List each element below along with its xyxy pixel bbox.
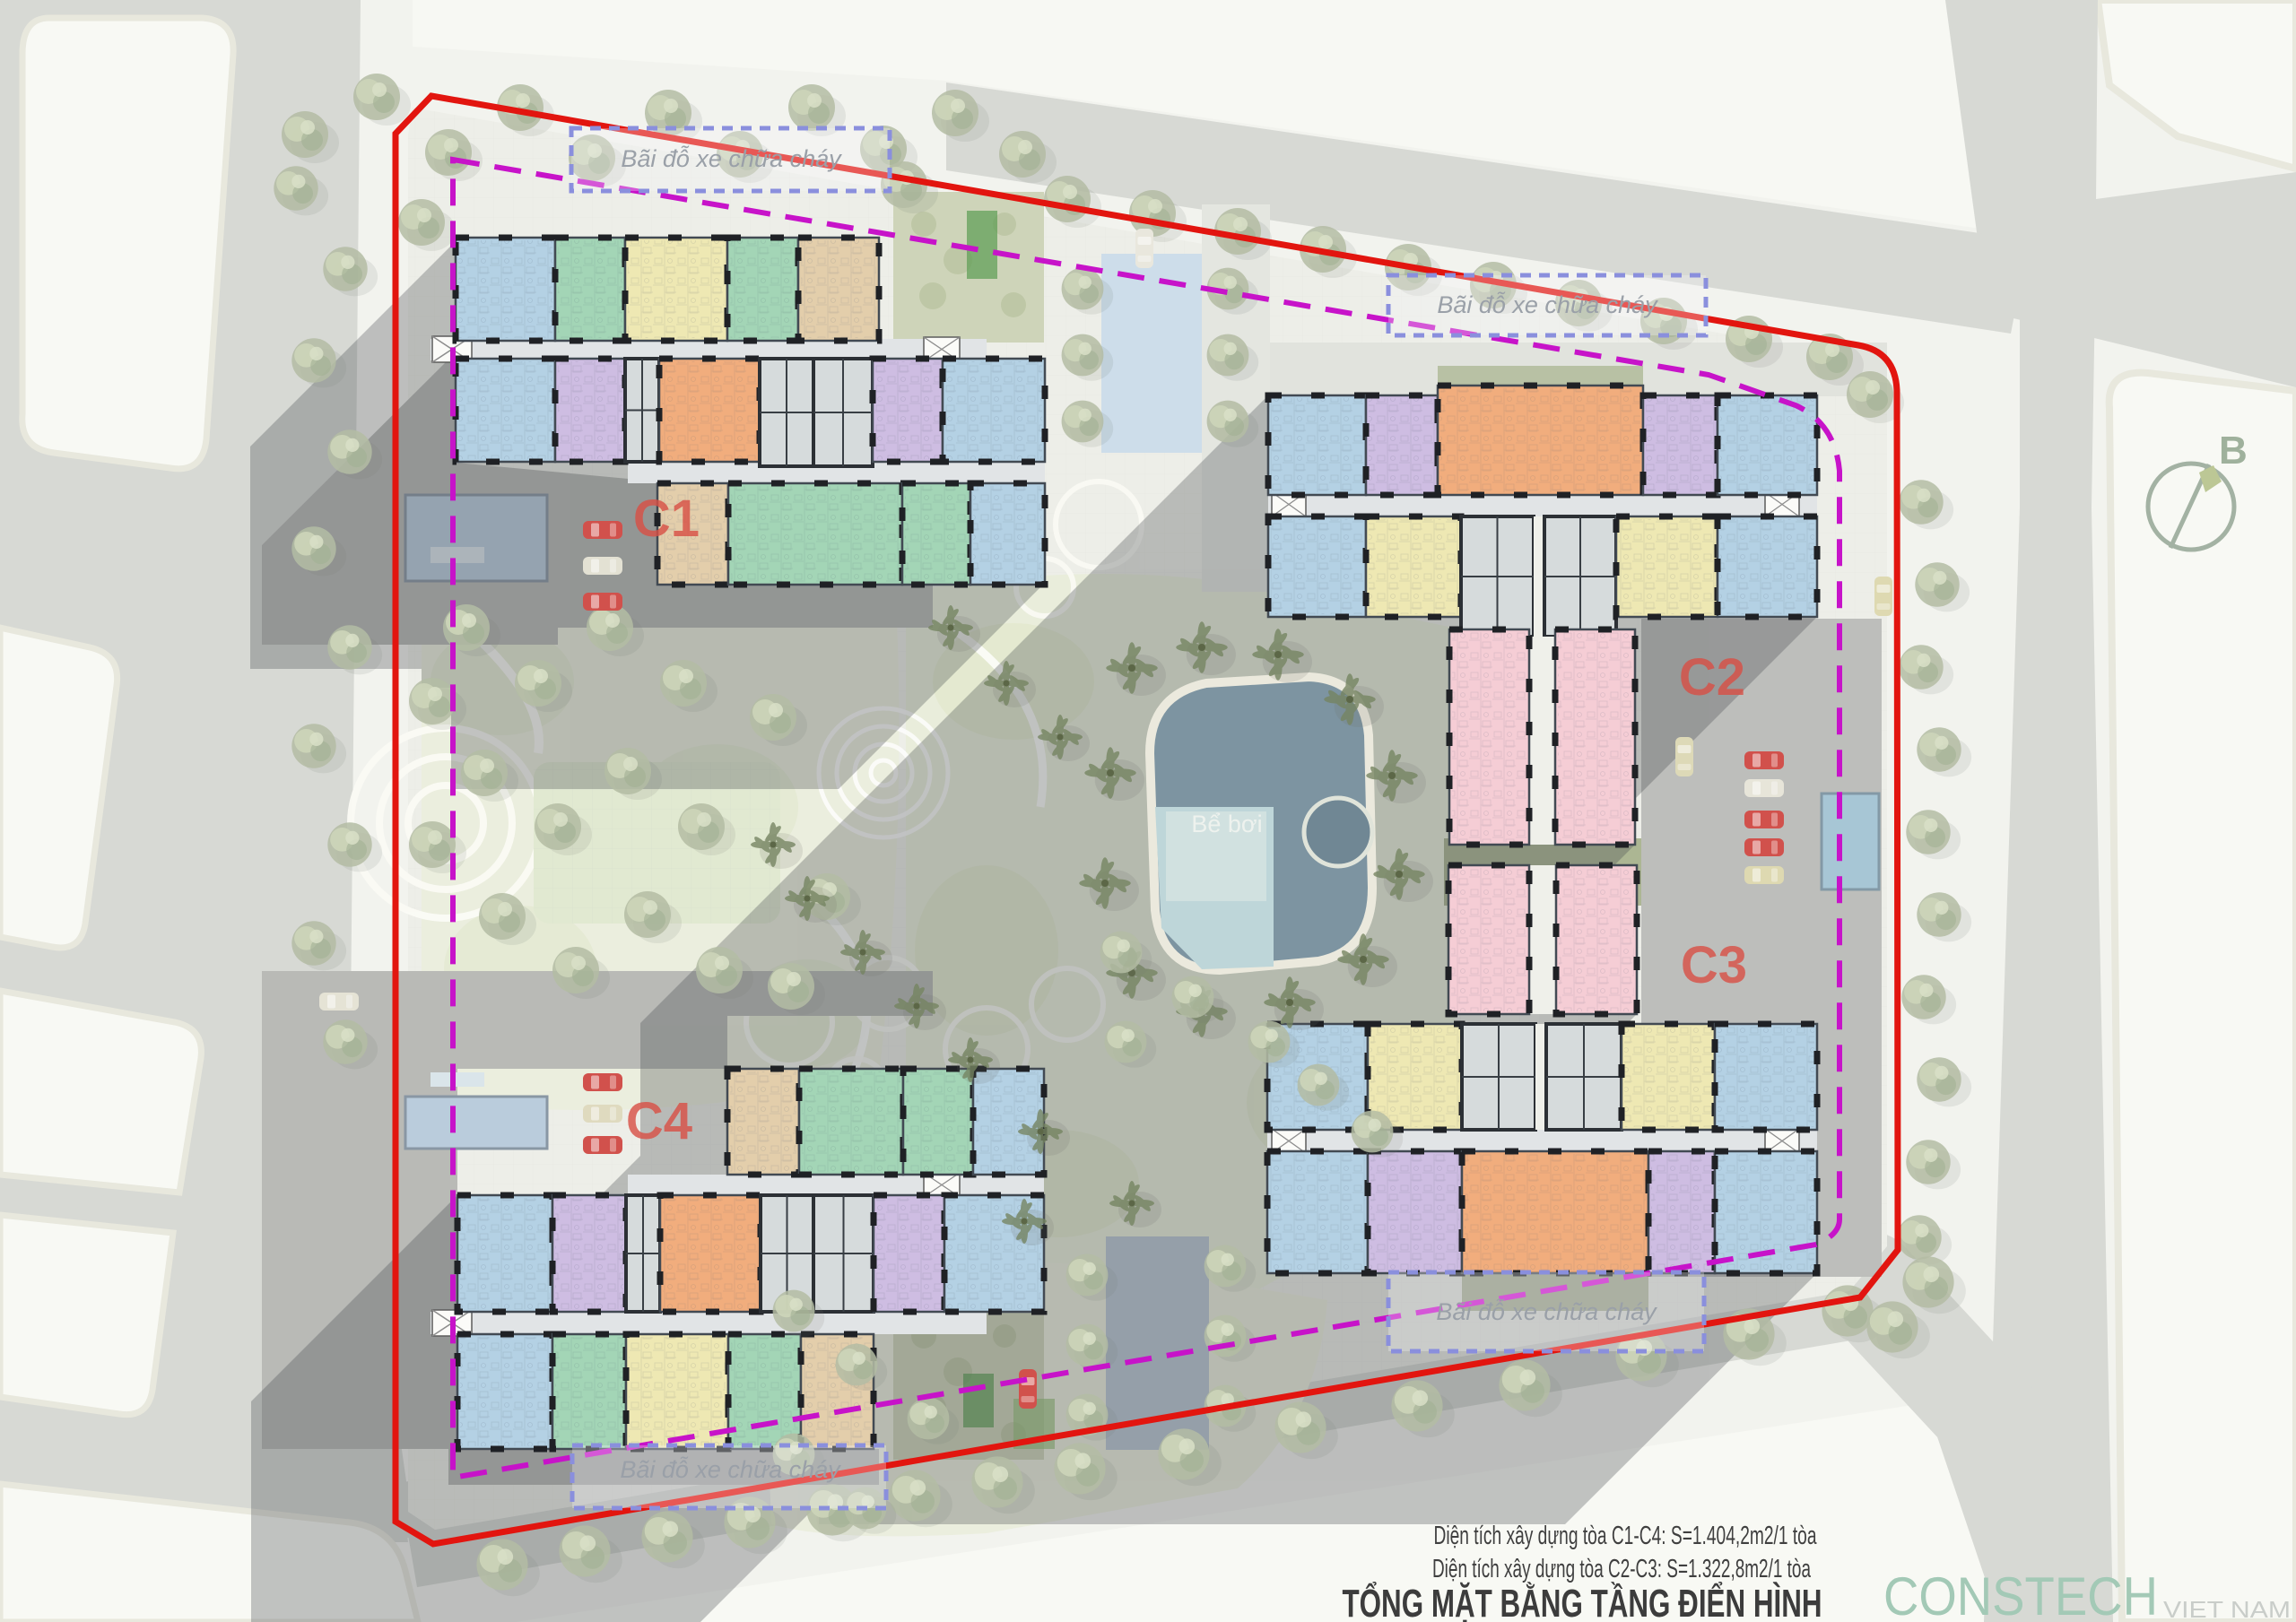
svg-text:VIET NAM: VIET NAM <box>2163 1596 2291 1622</box>
svg-text:C4: C4 <box>626 1092 692 1150</box>
svg-text:Bãi đỗ xe chữa cháy: Bãi đỗ xe chữa cháy <box>1437 291 1658 318</box>
svg-text:Bãi đỗ xe chữa cháy: Bãi đỗ xe chữa cháy <box>620 1455 841 1483</box>
svg-text:B: B <box>2219 429 2248 473</box>
svg-text:TỔNG MẶT BẰNG TẦNG ĐIỂN HÌNH: TỔNG MẶT BẰNG TẦNG ĐIỂN HÌNH <box>1343 1580 1822 1622</box>
svg-text:Diện tích xây dựng tòa C2-C3:: Diện tích xây dựng tòa C2-C3: S=1.322,8m… <box>1432 1555 1812 1583</box>
svg-text:CONSTECH: CONSTECH <box>1883 1566 2158 1622</box>
svg-text:Bãi đỗ xe chữa cháy: Bãi đỗ xe chữa cháy <box>1436 1297 1657 1325</box>
svg-text:Bãi đỗ xe chữa cháy: Bãi đỗ xe chữa cháy <box>621 144 842 172</box>
svg-text:C2: C2 <box>1679 648 1745 707</box>
svg-text:C1: C1 <box>633 490 700 548</box>
svg-text:Diện tích xây dựng tòa C1-C4:: Diện tích xây dựng tòa C1-C4: S=1.404,2m… <box>1434 1522 1818 1550</box>
svg-text:C3: C3 <box>1681 936 1747 994</box>
